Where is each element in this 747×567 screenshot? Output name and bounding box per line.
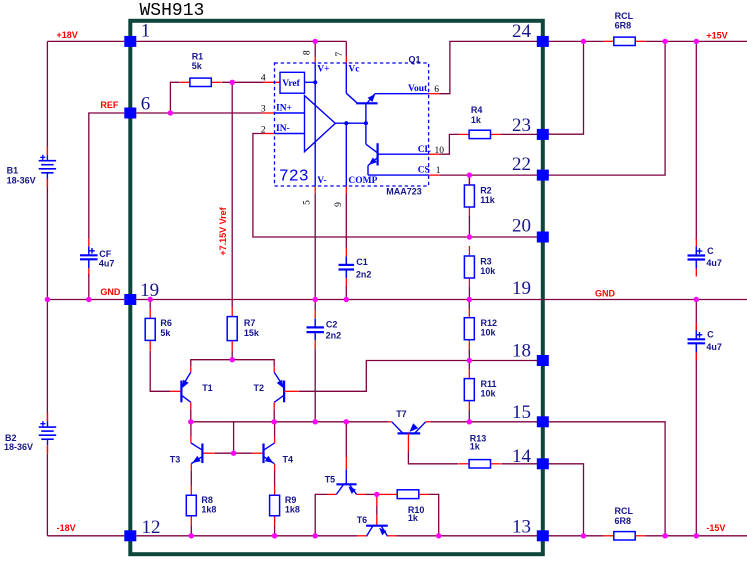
svg-text:5: 5 xyxy=(303,200,313,205)
svg-text:6R8: 6R8 xyxy=(615,21,632,31)
svg-text:18: 18 xyxy=(512,340,531,361)
svg-text:22: 22 xyxy=(512,154,531,175)
svg-text:T3: T3 xyxy=(170,455,181,465)
svg-text:COMP: COMP xyxy=(348,176,377,186)
svg-text:-15V: -15V xyxy=(706,523,725,533)
svg-text:15k: 15k xyxy=(244,328,260,338)
svg-text:10k: 10k xyxy=(481,389,497,399)
svg-text:R9: R9 xyxy=(285,495,297,505)
svg-text:GND: GND xyxy=(100,287,121,297)
svg-text:-18V: -18V xyxy=(57,523,76,533)
svg-text:GND: GND xyxy=(595,288,616,298)
svg-text:Vc: Vc xyxy=(348,64,359,74)
svg-text:T4: T4 xyxy=(283,455,294,465)
svg-text:7: 7 xyxy=(335,52,345,57)
svg-text:20: 20 xyxy=(512,216,531,237)
svg-text:4u7: 4u7 xyxy=(99,259,115,269)
svg-text:23: 23 xyxy=(512,115,531,136)
svg-text:12: 12 xyxy=(142,517,161,538)
svg-text:6: 6 xyxy=(141,94,151,115)
svg-text:R7: R7 xyxy=(244,318,256,328)
svg-text:1: 1 xyxy=(436,166,441,176)
svg-text:723: 723 xyxy=(279,166,309,185)
svg-text:C2: C2 xyxy=(326,320,338,330)
svg-text:T1: T1 xyxy=(202,383,213,393)
svg-text:V+: V+ xyxy=(317,64,329,74)
svg-text:R4: R4 xyxy=(471,105,483,115)
svg-text:B1: B1 xyxy=(7,165,19,175)
svg-text:C: C xyxy=(707,330,714,340)
svg-text:CL: CL xyxy=(418,145,431,155)
svg-text:T2: T2 xyxy=(254,383,265,393)
svg-text:13: 13 xyxy=(512,516,531,537)
svg-text:10: 10 xyxy=(435,146,445,156)
svg-text:RCL: RCL xyxy=(615,11,634,21)
svg-text:4u7: 4u7 xyxy=(706,342,722,352)
svg-text:9: 9 xyxy=(334,202,344,207)
svg-text:19: 19 xyxy=(512,278,531,299)
svg-text:19: 19 xyxy=(140,280,159,301)
svg-text:4: 4 xyxy=(261,73,266,83)
svg-text:11k: 11k xyxy=(480,195,496,205)
svg-text:R3: R3 xyxy=(480,257,492,267)
svg-text:REF: REF xyxy=(100,100,119,110)
svg-text:6R8: 6R8 xyxy=(615,516,632,526)
svg-text:R6: R6 xyxy=(160,318,172,328)
svg-text:2: 2 xyxy=(261,126,266,136)
svg-text:3: 3 xyxy=(261,104,266,114)
svg-text:10k: 10k xyxy=(480,266,496,276)
svg-text:+18V: +18V xyxy=(57,30,78,40)
svg-text:1k: 1k xyxy=(471,115,482,125)
svg-text:24: 24 xyxy=(512,21,532,42)
svg-text:+7.15V Vref: +7.15V Vref xyxy=(218,206,228,255)
svg-text:14: 14 xyxy=(512,446,532,467)
svg-text:R2: R2 xyxy=(480,186,492,196)
svg-text:R1: R1 xyxy=(192,52,204,62)
svg-text:Vout: Vout xyxy=(408,84,428,94)
svg-text:T7: T7 xyxy=(396,409,407,419)
svg-text:Q1: Q1 xyxy=(409,54,421,64)
svg-text:CS: CS xyxy=(418,166,430,176)
svg-text:C1: C1 xyxy=(356,257,368,267)
svg-text:WSH913: WSH913 xyxy=(140,1,205,21)
svg-text:15: 15 xyxy=(512,402,531,423)
svg-text:Vref: Vref xyxy=(282,79,300,89)
svg-text:R12: R12 xyxy=(481,318,498,328)
svg-text:IN+: IN+ xyxy=(276,104,292,114)
svg-text:R11: R11 xyxy=(481,379,497,389)
svg-text:1k: 1k xyxy=(470,441,481,451)
svg-text:1: 1 xyxy=(141,21,151,42)
svg-text:RCL: RCL xyxy=(615,506,634,516)
svg-text:+15V: +15V xyxy=(706,31,727,41)
svg-text:IN-: IN- xyxy=(276,124,290,134)
svg-text:5k: 5k xyxy=(192,61,203,71)
svg-text:18-36V: 18-36V xyxy=(7,176,36,186)
svg-text:T5: T5 xyxy=(325,474,336,484)
svg-text:6: 6 xyxy=(434,85,439,95)
svg-text:1k8: 1k8 xyxy=(285,505,300,515)
svg-text:MAA723: MAA723 xyxy=(386,187,422,197)
svg-text:C: C xyxy=(707,246,714,256)
svg-text:10k: 10k xyxy=(481,328,497,338)
svg-text:T6: T6 xyxy=(357,515,368,525)
svg-text:1k: 1k xyxy=(408,513,419,523)
svg-text:CF: CF xyxy=(99,249,111,259)
svg-text:1k8: 1k8 xyxy=(201,505,216,515)
svg-text:4u7: 4u7 xyxy=(706,258,722,268)
svg-text:R8: R8 xyxy=(201,495,213,505)
svg-text:18-36V: 18-36V xyxy=(4,442,33,452)
svg-text:5k: 5k xyxy=(160,328,171,338)
svg-text:8: 8 xyxy=(303,50,313,55)
svg-text:V-: V- xyxy=(317,176,326,186)
svg-text:2n2: 2n2 xyxy=(326,331,342,341)
svg-text:2n2: 2n2 xyxy=(356,269,372,279)
